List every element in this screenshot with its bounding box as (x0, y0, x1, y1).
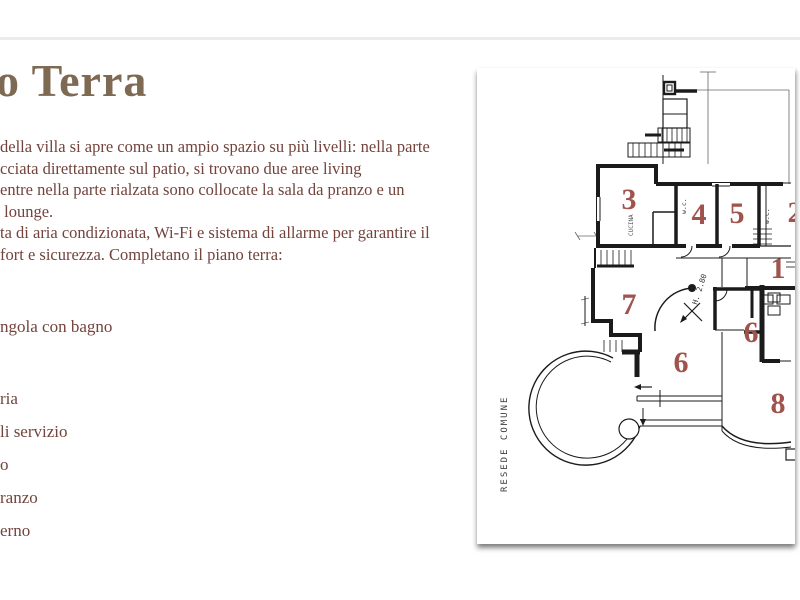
paragraph-line: della villa si apre come un ampio spazio… (0, 136, 475, 158)
list-item: li servizio (0, 422, 68, 442)
wc-label: w.c. (680, 198, 688, 214)
intro-paragraph: della villa si apre come un ampio spazio… (0, 136, 475, 265)
room-number-2: 2 (788, 196, 796, 229)
room-number-1: 1 (771, 252, 786, 285)
round-bay (529, 351, 640, 465)
wc-label: w.c. (763, 208, 771, 224)
kitchen-label: CUCINA (628, 214, 635, 236)
room-number-3: 3 (622, 183, 637, 216)
list-item: ria (0, 389, 18, 409)
site-label: RESEDE COMUNE (500, 396, 510, 492)
room-number-6a: 6 (744, 316, 759, 349)
floorplan-drawing: RESEDE COMUNE H. 2.80 w.c. w.c. CUCINA 3… (477, 68, 795, 544)
list-item: ranzo (0, 488, 38, 508)
top-divider (0, 37, 800, 40)
list-item: ngola con bagno (0, 317, 112, 337)
room-number-6b: 6 (674, 346, 689, 379)
list-item: o (0, 455, 9, 475)
plan-annotations: RESEDE COMUNE H. 2.80 w.c. w.c. CUCINA (500, 198, 771, 492)
room-number-5: 5 (730, 197, 745, 230)
room-number-8: 8 (771, 387, 786, 420)
paragraph-line: lounge. (0, 201, 475, 223)
page-title: o Terra (0, 54, 147, 107)
room-number-7: 7 (622, 288, 637, 321)
slide: o Terra della villa si apre come un ampi… (0, 0, 800, 600)
list-item: erno (0, 521, 30, 541)
room-number-4: 4 (692, 198, 707, 231)
paragraph-line: cciata direttamente sul patio, si trovan… (0, 158, 475, 180)
floorplan-image: RESEDE COMUNE H. 2.80 w.c. w.c. CUCINA 3… (477, 68, 795, 544)
exterior-stairs (628, 75, 697, 164)
paragraph-line: fort e sicurezza. Completano il piano te… (0, 244, 475, 266)
paragraph-line: ta di aria condizionata, Wi-Fi e sistema… (0, 222, 475, 244)
paragraph-line: entre nella parte rialzata sono collocat… (0, 179, 475, 201)
